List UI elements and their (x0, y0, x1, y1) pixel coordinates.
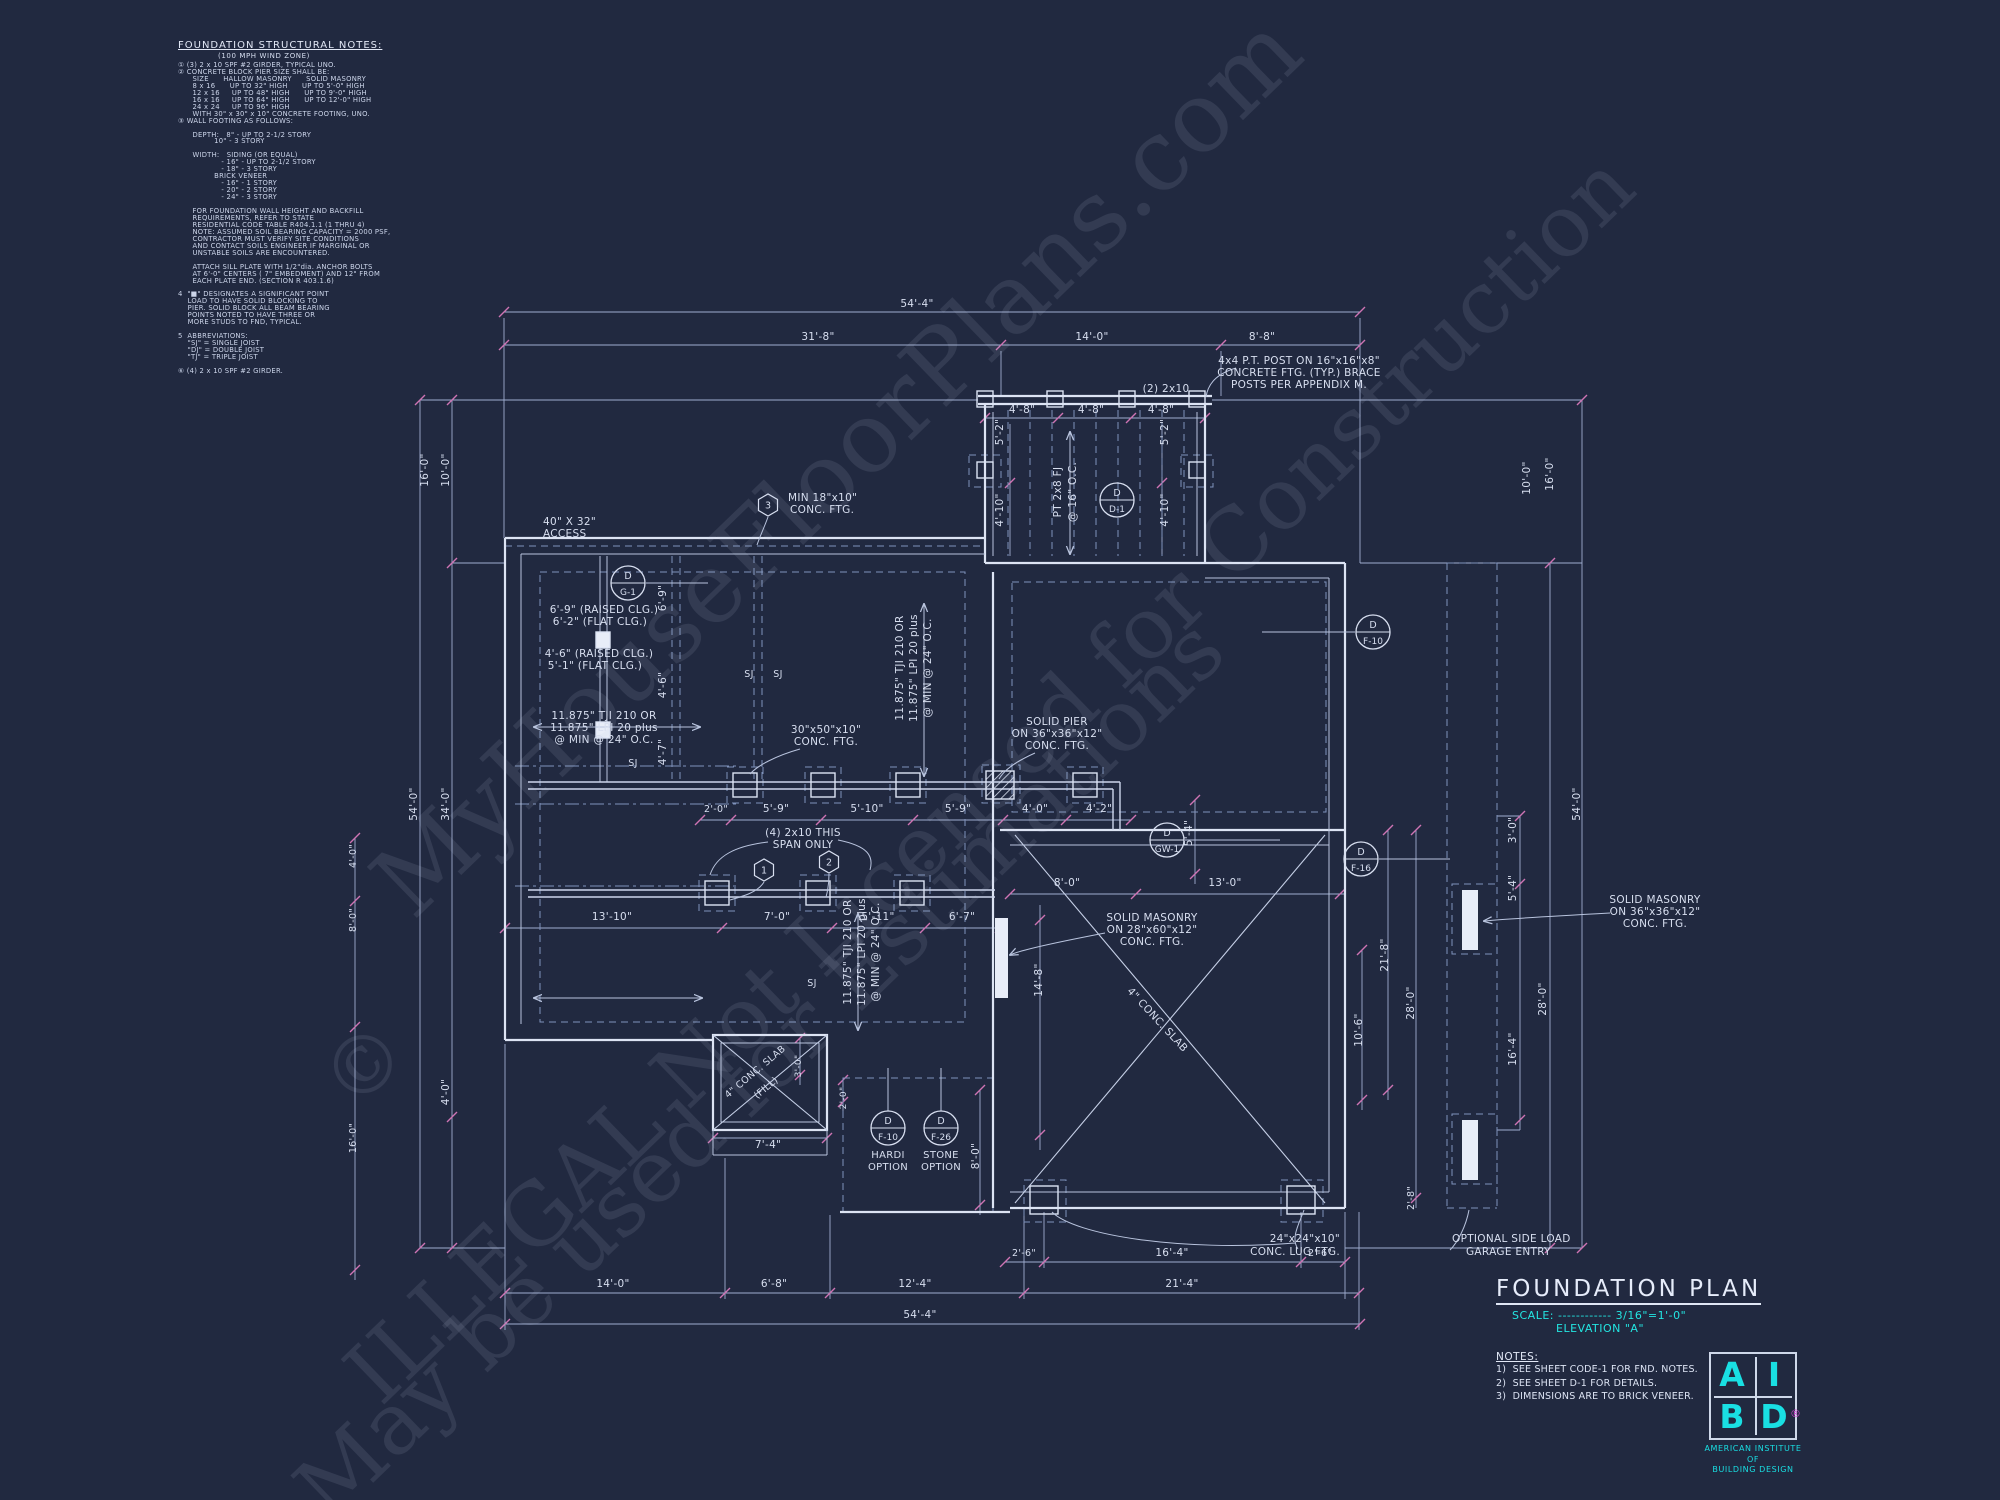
plan-label: (4) 2x10 THIS (765, 827, 841, 839)
aibd-logo: A I B D ® AMERICAN INSTITUTE OF BUILDING… (1703, 1352, 1803, 1475)
logo-org-line: AMERICAN INSTITUTE (1703, 1444, 1803, 1454)
plan-label: 10'-0" (440, 453, 452, 486)
plan-label: @ 16" O.C. (1067, 462, 1079, 522)
plan-label: SJ (628, 758, 637, 769)
plan-label: 5'-4" (1183, 820, 1195, 846)
detail-circle-bottom-label: D-1 (1109, 505, 1125, 515)
plan-label: 13'-0" (1208, 877, 1241, 889)
sheet-title: FOUNDATION PLAN (1496, 1276, 1761, 1305)
plan-label: 31'-8" (801, 331, 834, 343)
plan-label: 4'-10" (994, 493, 1006, 526)
aibd-logo-box: A I B D ® (1709, 1352, 1797, 1440)
plan-label: 54'-4" (903, 1309, 936, 1321)
structural-note-line: UNSTABLE SOILS ARE ENCOUNTERED. (178, 250, 508, 257)
plan-label: 8'-8" (1249, 331, 1275, 343)
detail-circle-bottom-label: GW-1 (1155, 845, 1179, 855)
notes-subtitle: (100 MPH WIND ZONE) (178, 52, 508, 60)
detail-circle-top-label: D (937, 1116, 944, 1127)
plan-label: GARAGE ENTRY (1466, 1246, 1551, 1258)
plan-label: 13'-10" (592, 911, 632, 923)
plan-label: 14'-0" (1075, 331, 1108, 343)
structural-note-line: ⑥ (4) 2 x 10 SPF #2 GIRDER. (178, 368, 508, 375)
plan-label: OPTIONAL SIDE LOAD (1452, 1233, 1571, 1245)
plan-label: ACCESS (543, 528, 586, 540)
structural-note-line: EACH PLATE END. (SECTION R 403.1.6) (178, 278, 508, 285)
watermark-text: May be used for Estimations (276, 600, 1244, 1500)
plan-label: PT 2x8 FJ (1052, 467, 1064, 518)
plan-label: 2'-0" (704, 804, 728, 815)
scale-label: SCALE: (1512, 1309, 1554, 1322)
plan-label: 40" X 32" (543, 516, 596, 528)
elevation-label: ELEVATION "A" (1556, 1322, 1766, 1335)
plan-label: 2'-6" (1012, 1248, 1036, 1259)
plan-label: SJ (773, 669, 782, 680)
plan-label: 7'-4" (755, 1139, 781, 1151)
structural-notes: FOUNDATION STRUCTURAL NOTES: (100 MPH WI… (178, 40, 508, 375)
registered-mark: ® (1790, 1407, 1801, 1420)
logo-letter-a: A (1711, 1354, 1753, 1396)
plan-label: 16'-0" (348, 1123, 359, 1153)
detail-circle-top-label: D (884, 1116, 891, 1127)
plan-label: 8'-0" (1054, 877, 1080, 889)
detail-circle-top-label: D (1357, 847, 1364, 858)
plan-label: 5'-9" (763, 803, 789, 815)
plan-label: 4'-7" (657, 739, 669, 765)
plan-label: @ MIN @ 24" O.C. (922, 618, 934, 717)
notes-title: FOUNDATION STRUCTURAL NOTES: (178, 40, 508, 51)
plan-label: 12'-4" (898, 1278, 931, 1290)
structural-note-line: 10" - 3 STORY (178, 138, 508, 145)
detail-circle-bottom-label: F-10 (1363, 637, 1383, 647)
plan-label: 16'-0" (1544, 457, 1556, 490)
detail-circle-bottom-label: F-16 (1351, 864, 1371, 874)
logo-letter-i: I (1753, 1354, 1795, 1396)
plan-label: STONE (923, 1150, 959, 1161)
plan-label: 2'-8" (1406, 1186, 1417, 1210)
plan-label: 4'-10" (1159, 493, 1171, 526)
detail-circle-top-label: D (1163, 828, 1170, 839)
plan-label: SOLID MASONRY (1106, 912, 1198, 924)
notes-lines: ① (3) 2 x 10 SPF #2 GIRDER, TYPICAL UNO.… (178, 62, 508, 375)
logo-letter-b: B (1711, 1396, 1753, 1438)
structural-note-line: "TJ" = TRIPLE JOIST (178, 354, 508, 361)
logo-org-line: OF (1703, 1455, 1803, 1465)
plan-label: 28'-0" (1537, 982, 1549, 1015)
plan-label: 8'-0" (970, 1143, 982, 1169)
plan-label: 24"x24"x10" (1270, 1233, 1340, 1245)
plan-label: 2'-0" (839, 1087, 849, 1110)
logo-org-name: AMERICAN INSTITUTE OF BUILDING DESIGN (1703, 1444, 1803, 1475)
watermark-text: © (303, 1004, 425, 1126)
plan-label: 14'-8" (1033, 963, 1045, 996)
plan-label: 5'-2" (1159, 419, 1171, 445)
blueprint-sheet: 54'-4"31'-8"14'-0"8'-8"4'-8"4'-8"4'-8"(2… (0, 0, 2000, 1500)
plan-label: 11.875" TJI 210 OR (894, 615, 906, 720)
plan-label: 4" CONC. SLAB (1124, 985, 1190, 1054)
plan-label: 28'-0" (1405, 986, 1417, 1019)
plan-label: 16'-0" (419, 453, 431, 486)
plan-label: 54'-0" (1571, 787, 1583, 820)
detail-circle-bottom-label: F-10 (878, 1133, 898, 1143)
plan-label: 21'-8" (1379, 938, 1391, 971)
plan-label: 4'-8" (1078, 404, 1104, 416)
hex-note-number: 1 (761, 866, 767, 877)
plan-label: OPTION (921, 1162, 961, 1173)
plan-label: 6'-8" (761, 1278, 787, 1290)
plan-label: 21'-4" (1165, 1278, 1198, 1290)
plan-label: 3'-0" (1507, 817, 1519, 843)
logo-org-line: BUILDING DESIGN (1703, 1465, 1803, 1475)
plan-label: 11.875" LPI 20 plus (908, 614, 920, 722)
plan-label: SOLID MASONRY (1609, 894, 1701, 906)
plan-label: SPAN ONLY (773, 839, 834, 851)
plan-label: 4'-0" (440, 1079, 452, 1105)
plan-label: CONC. FTG. (1623, 918, 1687, 930)
structural-note-line: MORE STUDS TO FND, TYPICAL. (178, 319, 508, 326)
plan-label: CONC. FTG. (1120, 936, 1184, 948)
plan-label: CONC. FTG. (794, 736, 858, 748)
plan-label: ON 36"x36"x12" (1610, 906, 1701, 918)
plan-label: HARDI (871, 1150, 904, 1161)
plan-label: (2) 2x10 (1143, 383, 1190, 395)
plan-label: 4'-8" (1148, 404, 1174, 416)
plan-label: 16'-4" (1507, 1032, 1519, 1065)
detail-circle-bottom-label: F-26 (931, 1133, 951, 1143)
plan-label: 2'-6" (1308, 1248, 1332, 1259)
detail-circle-top-label: D (624, 571, 631, 582)
plan-label: 16'-4" (1155, 1247, 1188, 1259)
scale-value: 3/16"=1'-0" (1616, 1309, 1687, 1322)
plan-label: 8'-0" (348, 908, 359, 932)
plan-label: SJ (744, 669, 753, 680)
plan-label: 30"x50"x10" (791, 724, 861, 736)
plan-label: 5'-4" (1507, 875, 1519, 901)
plan-label: 5'-2" (994, 419, 1006, 445)
structural-note-line: - 24" - 3 STORY (178, 194, 508, 201)
plan-label: ON 28"x60"x12" (1107, 924, 1198, 936)
scale-dots: ------------ (1558, 1309, 1612, 1322)
plan-label: 5'-10" (850, 803, 883, 815)
detail-circle-top-label: D (1113, 488, 1120, 499)
plan-label: OPTION (868, 1162, 908, 1173)
structural-note-line: ③ WALL FOOTING AS FOLLOWS: (178, 118, 508, 125)
scale-line: SCALE: ------------ 3/16"=1'-0" (1512, 1309, 1766, 1322)
detail-circle-top-label: D (1369, 620, 1376, 631)
plan-label: 10'-0" (1521, 461, 1533, 494)
plan-label: 4'-8" (1009, 404, 1035, 416)
plan-label: 10'-6" (1353, 1013, 1365, 1046)
logo-letter-d: D (1753, 1396, 1795, 1438)
